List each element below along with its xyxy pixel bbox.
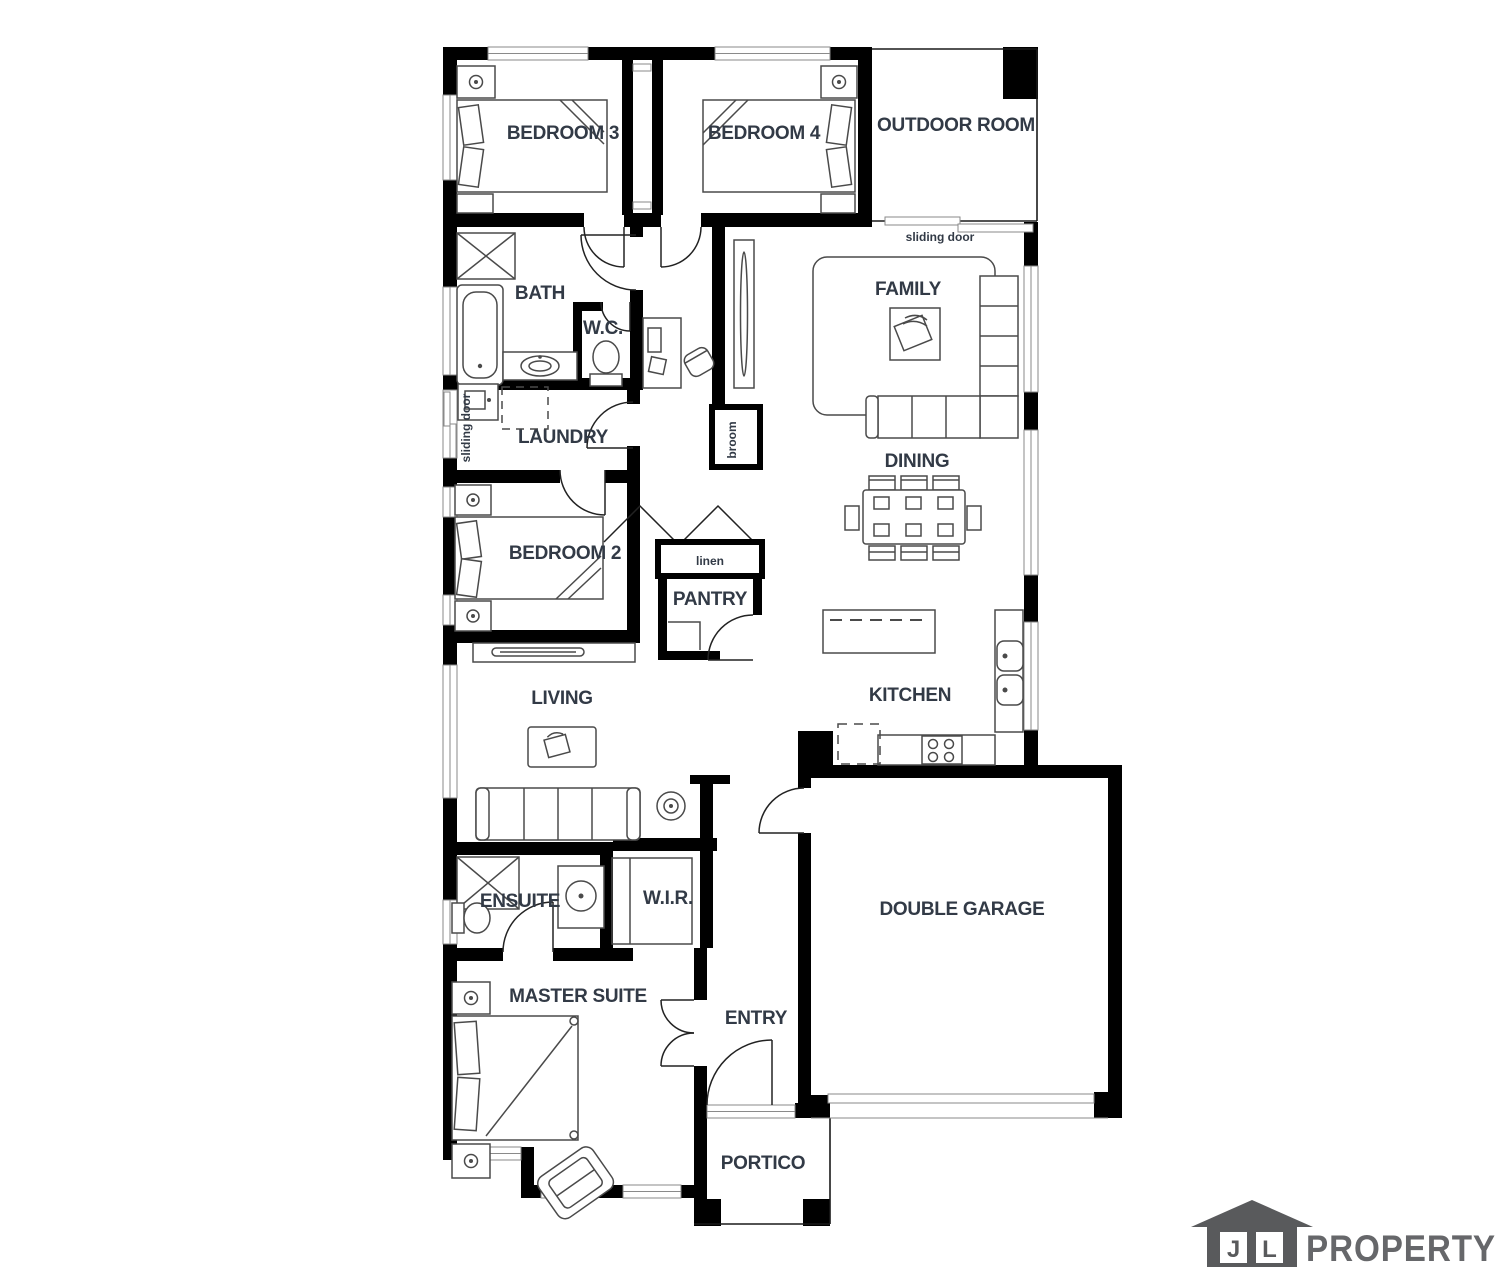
tv-unit-icon <box>473 643 635 662</box>
cooktop-icon <box>922 736 962 764</box>
double-door-icon <box>661 1000 694 1066</box>
ottoman-icon <box>890 308 940 360</box>
window-icon <box>1024 622 1038 730</box>
window-icon <box>1024 430 1038 575</box>
window-icon <box>707 1105 795 1118</box>
room-label-living: LIVING <box>531 688 593 709</box>
washer-space-icon <box>502 387 548 429</box>
desk-icon <box>643 318 716 388</box>
room-label-family: FAMILY <box>875 279 942 300</box>
room-label-dining: DINING <box>885 451 950 472</box>
annotation-linen: linen <box>696 554 724 568</box>
window-icon <box>1024 266 1038 392</box>
door-arc-icon <box>759 788 804 833</box>
jl-property-logo: J L PROPERTY <box>1191 1200 1496 1269</box>
pantry-shelf-icon <box>668 622 700 650</box>
floor-plan-page: BEDROOM 3 BEDROOM 4 OUTDOOR ROOM BATH W.… <box>0 0 1501 1280</box>
dining-table-icon <box>845 476 981 560</box>
door-arc-icon <box>707 1040 772 1105</box>
sofa-icon <box>866 276 1018 438</box>
vanity-sink-icon <box>558 866 604 928</box>
room-label-wc: W.C. <box>583 318 623 339</box>
armchair-icon <box>534 1143 617 1222</box>
fridge-space-icon <box>838 724 880 764</box>
window-icon <box>443 287 457 375</box>
logo-letter-l: L <box>1262 1236 1277 1263</box>
room-label-bath: BATH <box>515 283 565 304</box>
annotation-broom: broom <box>725 421 739 458</box>
sliding-door-icon <box>443 390 457 458</box>
annotation-sliding-door-left: sliding door <box>459 393 473 462</box>
kitchen-island-icon <box>823 610 935 653</box>
window-icon <box>715 47 830 60</box>
room-label-kitchen: KITCHEN <box>869 685 951 706</box>
room-label-outdoor-room: OUTDOOR ROOM <box>877 115 1035 136</box>
vanity-sink-icon <box>503 352 577 380</box>
door-arc-icon <box>661 227 701 267</box>
logo-house-roof-icon <box>1191 1200 1313 1227</box>
plant-icon <box>657 792 685 820</box>
room-label-master-suite: MASTER SUITE <box>509 986 647 1007</box>
room-label-portico: PORTICO <box>721 1153 805 1174</box>
window-icon <box>623 1185 681 1198</box>
window-icon <box>443 665 457 798</box>
window-icon <box>443 95 457 180</box>
annotation-sliding-door-top: sliding door <box>906 230 975 244</box>
door-arc-icon <box>584 227 624 267</box>
shower-icon <box>457 233 515 279</box>
room-label-bedroom4: BEDROOM 4 <box>708 123 821 144</box>
floor-plan: BEDROOM 3 BEDROOM 4 OUTDOOR ROOM BATH W.… <box>0 0 1501 1280</box>
room-label-ensuite: ENSUITE <box>480 891 560 912</box>
sofa-icon <box>476 788 640 840</box>
bathtub-icon <box>457 285 503 385</box>
bifold-door-icon <box>604 506 754 542</box>
hall-cabinet-icon <box>734 240 754 388</box>
room-label-wir: W.I.R. <box>643 888 693 909</box>
door-arc-icon <box>560 470 605 515</box>
toilet-icon <box>590 341 622 386</box>
coffee-table-icon <box>528 727 596 767</box>
room-label-double-garage: DOUBLE GARAGE <box>880 899 1045 920</box>
room-label-pantry: PANTRY <box>673 589 748 610</box>
door-arc-icon <box>581 235 636 290</box>
logo-wordmark: PROPERTY <box>1306 1228 1496 1269</box>
room-label-entry: ENTRY <box>725 1008 788 1029</box>
logo-letter-j: J <box>1227 1236 1240 1263</box>
room-label-bedroom2: BEDROOM 2 <box>509 543 621 564</box>
window-icon <box>488 47 588 60</box>
room-label-bedroom3: BEDROOM 3 <box>507 123 619 144</box>
room-label-laundry: LAUNDRY <box>518 427 609 448</box>
